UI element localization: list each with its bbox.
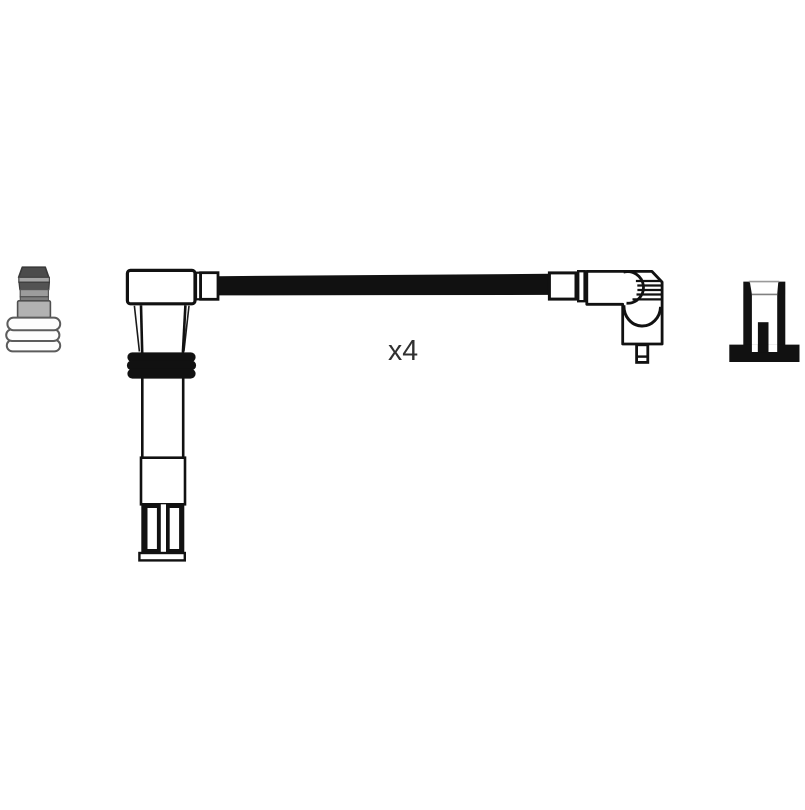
svg-text:x4: x4 [388,335,418,367]
